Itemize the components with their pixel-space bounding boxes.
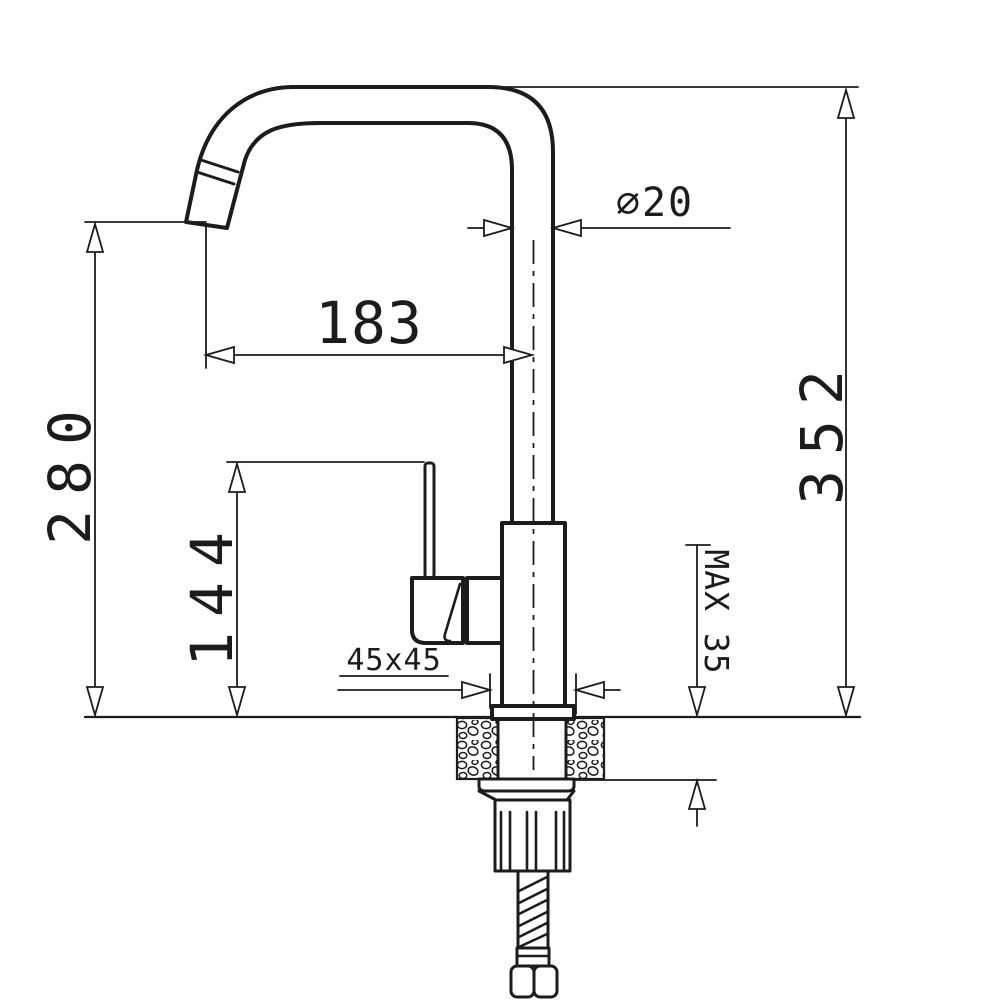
arrow-down-icon bbox=[229, 687, 245, 715]
arrow-down-icon bbox=[87, 687, 103, 715]
dim-max35-label: MAX 35 bbox=[697, 549, 736, 674]
dim-144-label: 144 bbox=[178, 517, 246, 667]
arrow-left-icon bbox=[553, 220, 581, 236]
hose-hex-nut-right bbox=[534, 966, 557, 997]
mounting-collar bbox=[479, 779, 574, 791]
countertop-hatch-right bbox=[566, 718, 604, 779]
supply-hose-braid bbox=[519, 877, 547, 947]
dim-d20-label: ⌀20 bbox=[616, 180, 694, 226]
counter-hole-walls bbox=[498, 718, 566, 779]
dim-45x45: 45x45 bbox=[338, 643, 620, 714]
arrow-down-icon bbox=[689, 687, 705, 715]
arrow-right-icon bbox=[462, 682, 490, 698]
handle-connector bbox=[467, 578, 502, 643]
hose-hex-nut-left bbox=[511, 966, 534, 997]
mounting-assembly bbox=[479, 779, 574, 997]
mounting-nut bbox=[495, 800, 570, 871]
arrow-up-icon bbox=[838, 90, 854, 118]
arrow-right-icon bbox=[504, 347, 532, 363]
dim-183-label: 183 bbox=[315, 289, 423, 357]
arrow-up-icon bbox=[87, 224, 103, 252]
handle-lever-rod bbox=[425, 463, 434, 578]
countertop-section bbox=[457, 718, 604, 779]
arrow-left-icon bbox=[206, 347, 234, 363]
arrow-right-icon bbox=[484, 220, 512, 236]
arrow-left-icon bbox=[576, 682, 604, 698]
dim-352-label: 352 bbox=[788, 355, 856, 505]
arrow-up-icon bbox=[229, 464, 245, 492]
dim-diameter-20: ⌀20 bbox=[468, 180, 730, 236]
dim-45x45-label: 45x45 bbox=[346, 643, 441, 678]
arrow-up-icon bbox=[689, 781, 705, 809]
countertop-hatch-left bbox=[457, 718, 498, 779]
dim-183: 183 bbox=[206, 226, 532, 368]
handle-knob bbox=[412, 578, 463, 643]
aerator-joint-lines bbox=[197, 160, 238, 184]
arrow-down-icon bbox=[838, 687, 854, 715]
technical-drawing-canvas: 280 144 183 352 ⌀20 45x45 bbox=[0, 0, 1000, 1000]
faucet-dimension-drawing: 280 144 183 352 ⌀20 45x45 bbox=[0, 0, 1000, 1000]
dim-280-label: 280 bbox=[36, 395, 104, 545]
